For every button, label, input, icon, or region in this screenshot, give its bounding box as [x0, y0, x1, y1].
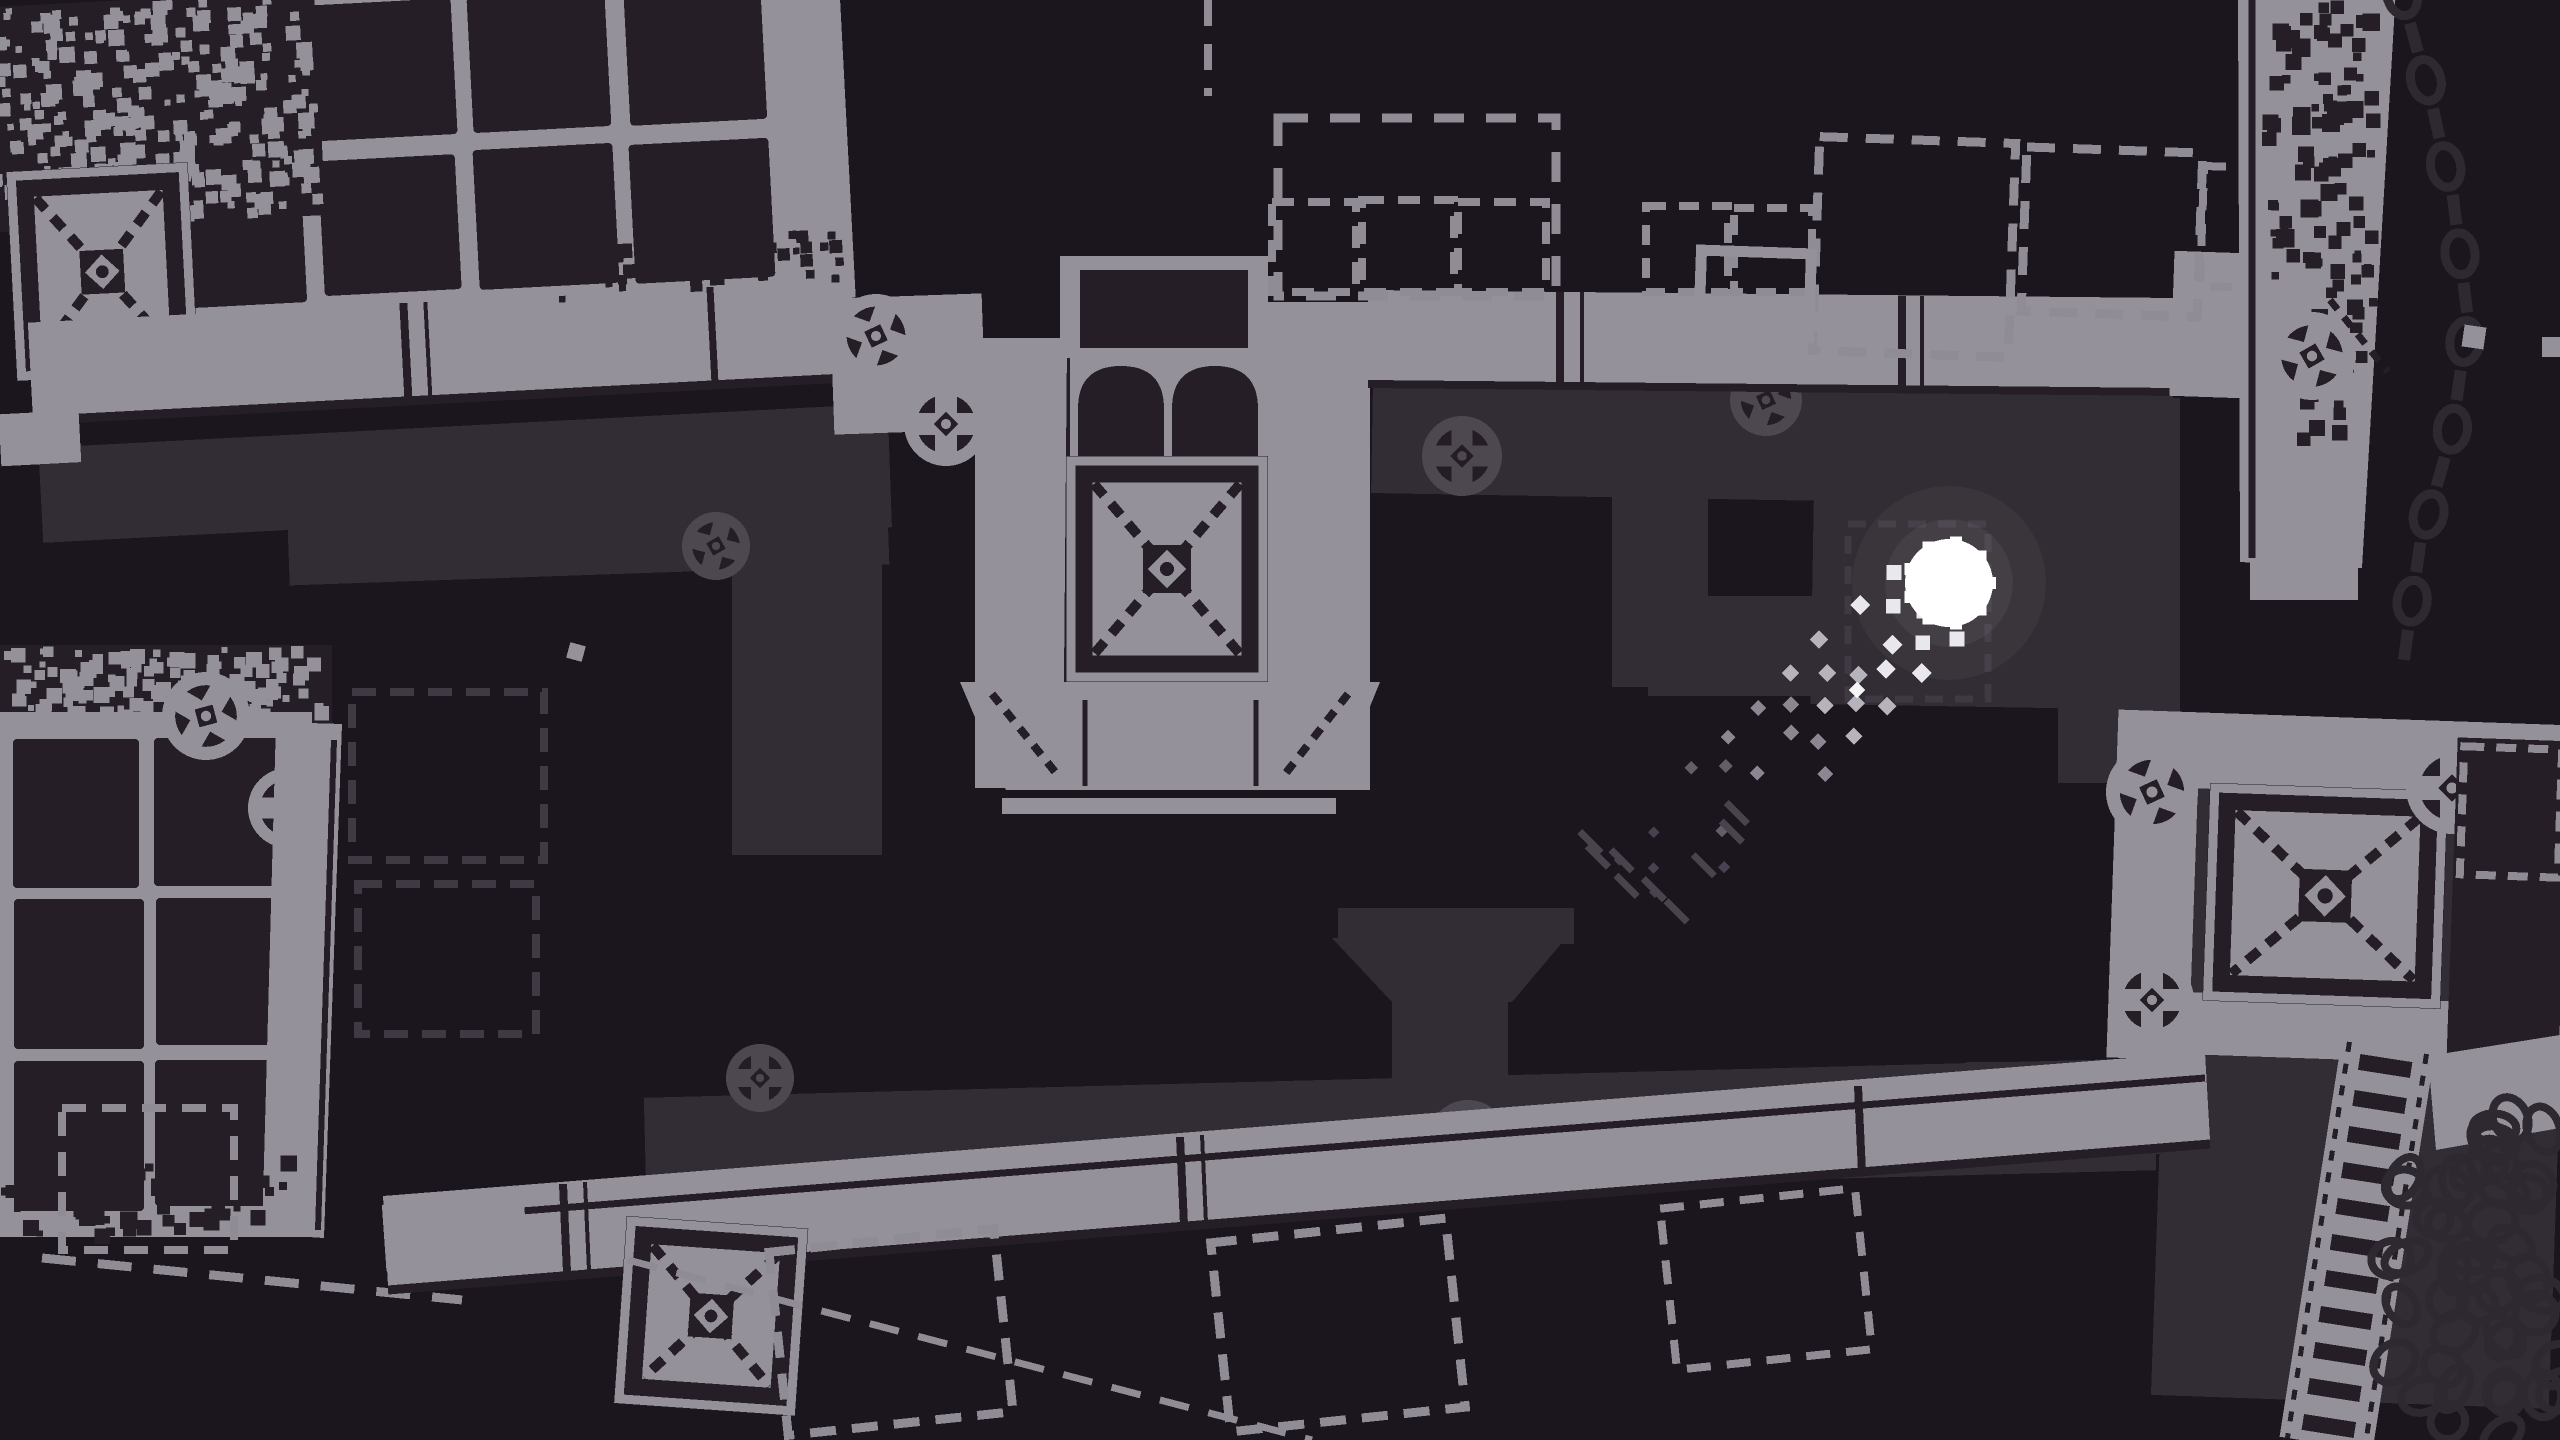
x-carved-block [1066, 456, 1268, 682]
shadow-cross-joint [1422, 416, 1502, 496]
seam-line [1180, 1137, 1184, 1225]
dashed-frame [358, 884, 536, 1034]
wall-slab [2238, 0, 2396, 568]
wall-block [1648, 596, 1826, 696]
wall-block [2250, 560, 2358, 600]
dashed-frame [1362, 200, 1454, 292]
wall-block [1080, 270, 1248, 348]
seam-line [563, 1184, 567, 1272]
dashed-frame [352, 692, 544, 860]
seam-line [403, 303, 408, 399]
dust-particle [2462, 325, 2487, 350]
shadow-cross-joint [726, 1044, 794, 1112]
dashed-frame [1458, 202, 1546, 292]
wall-block [1338, 908, 1574, 944]
seam-line [1858, 1086, 1862, 1172]
dashed-frame [1278, 118, 1556, 296]
game-scene [0, 0, 2560, 1440]
double-arch-niche [1070, 352, 1268, 462]
dust-particle [566, 642, 586, 662]
x-carved-block [2202, 783, 2447, 1009]
wall-slab [1332, 938, 1566, 1002]
dashed-frame [1272, 202, 1356, 292]
wall-block [1002, 798, 1336, 814]
game-viewport[interactable] [0, 0, 2560, 1440]
player-ball [1852, 486, 2046, 680]
cross-joint [2110, 958, 2194, 1042]
dust-particle [2542, 337, 2560, 357]
wall-block [732, 560, 882, 855]
wall-block [0, 410, 81, 466]
dashed-frame [1211, 1218, 1466, 1432]
wall-block [2169, 251, 2244, 398]
wall-block [2446, 737, 2560, 1071]
wall-block [1392, 998, 1508, 1104]
dashed-frame [1660, 1188, 1872, 1370]
wall-block [382, 1195, 528, 1271]
